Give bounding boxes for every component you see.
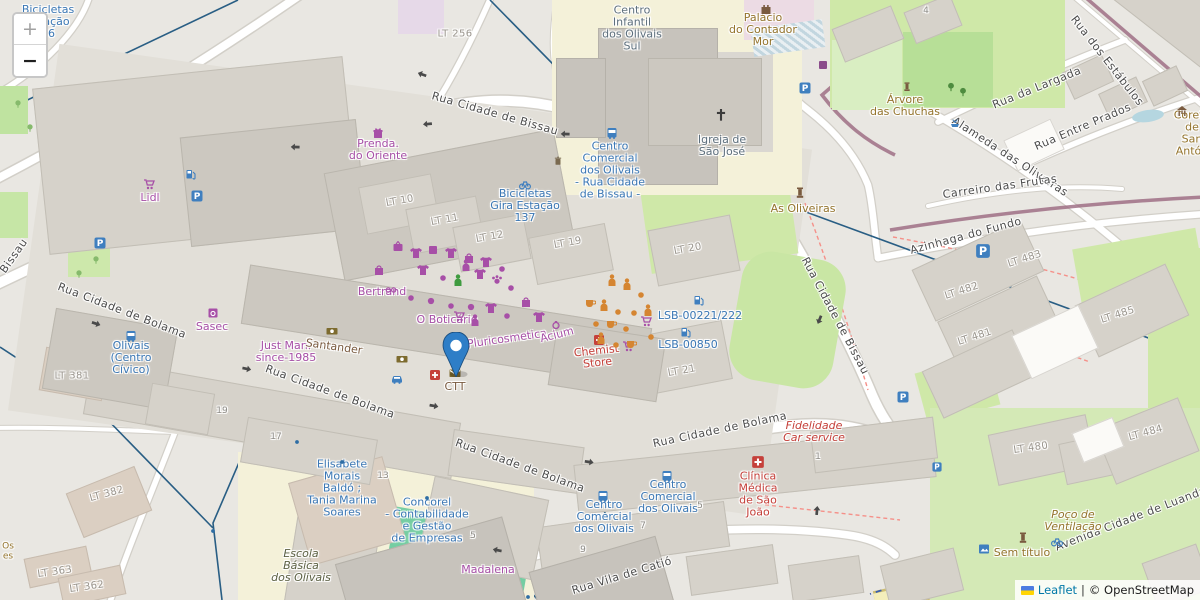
historic-wall xyxy=(890,197,1200,230)
attribution-bar: Leaflet | © OpenStreetMap xyxy=(1015,580,1200,600)
pond xyxy=(1131,108,1164,124)
leaflet-link[interactable]: Leaflet xyxy=(1038,583,1077,597)
map-canvas[interactable]: Rua Cidade de BissauBissauRua Cidade de … xyxy=(0,0,1200,600)
building xyxy=(648,58,762,146)
pink-area xyxy=(398,0,444,34)
ukraine-flag-icon xyxy=(1021,586,1034,595)
green xyxy=(0,86,28,134)
building xyxy=(556,58,606,138)
zoom-out-button[interactable]: − xyxy=(14,45,46,76)
green xyxy=(0,192,28,238)
osm-link[interactable]: © OpenStreetMap xyxy=(1089,583,1194,597)
zoom-control: + − xyxy=(12,12,48,78)
zoom-in-button[interactable]: + xyxy=(14,14,46,45)
attribution-separator: | xyxy=(1081,583,1085,597)
location-marker[interactable] xyxy=(442,332,470,381)
